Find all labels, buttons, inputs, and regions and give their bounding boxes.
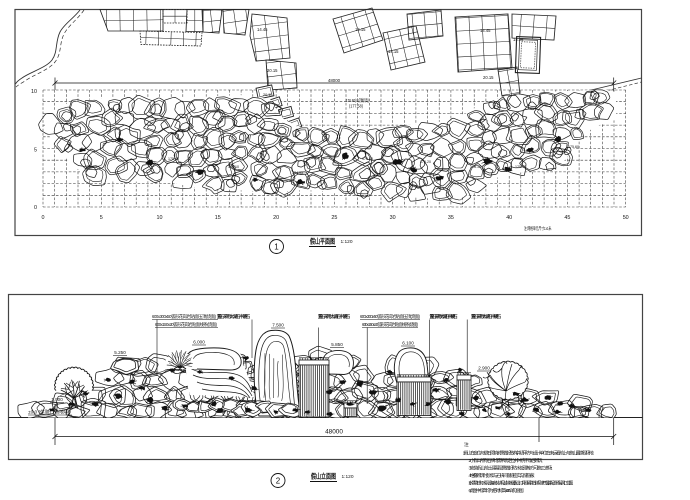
svg-text:20.15: 20.15 bbox=[267, 68, 278, 73]
svg-text:20.15: 20.15 bbox=[263, 93, 273, 97]
svg-text:175.10: 175.10 bbox=[470, 165, 481, 169]
svg-text:6.100: 6.100 bbox=[402, 341, 414, 346]
svg-text:假山立面图: 假山立面图 bbox=[311, 472, 336, 481]
svg-text:置石采用太湖石中硬石: 置石采用太湖石中硬石 bbox=[471, 313, 502, 320]
svg-text:48000: 48000 bbox=[325, 429, 343, 436]
svg-text:10: 10 bbox=[31, 89, 37, 95]
svg-text:48000: 48000 bbox=[328, 78, 341, 83]
svg-text:175.45: 175.45 bbox=[168, 157, 179, 161]
svg-text:0: 0 bbox=[42, 215, 45, 221]
svg-text:±0.0 (休憩广场地坪): ±0.0 (休憩广场地坪) bbox=[28, 409, 71, 416]
svg-text:4.堆叠砌筑时,砂浆与石块间嵌缝密实,勾缝隐蔽.: 4.堆叠砌筑时,砂浆与石块间嵌缝密实,勾缝隐蔽. bbox=[469, 472, 535, 479]
svg-text:(177.58): (177.58) bbox=[349, 104, 363, 109]
svg-text:35: 35 bbox=[448, 215, 454, 221]
svg-text:2.900: 2.900 bbox=[478, 366, 490, 371]
svg-text:1.假山在定位与塑石砌筑前需做好放样,并请甲方与设计单位 在: 1.假山在定位与塑石砌筑前需做好放样,并请甲方与设计单位 在未运看前上与施山置换… bbox=[463, 450, 594, 457]
svg-text:175.60: 175.60 bbox=[568, 145, 579, 149]
svg-text:14.15: 14.15 bbox=[355, 27, 366, 32]
svg-text:2: 2 bbox=[276, 477, 281, 486]
svg-text:6.000: 6.000 bbox=[193, 340, 205, 345]
svg-text:14.45: 14.45 bbox=[480, 28, 491, 33]
svg-text:置石采用太湖石中硬石: 置石采用太湖石中硬石 bbox=[318, 313, 351, 320]
svg-text:14.15: 14.15 bbox=[388, 49, 399, 54]
svg-text:7.500: 7.500 bbox=[272, 323, 284, 328]
svg-text:5: 5 bbox=[34, 148, 37, 154]
svg-text:1:120: 1:120 bbox=[342, 474, 354, 480]
svg-text:20: 20 bbox=[273, 215, 279, 221]
svg-text:600x150x20弧形花岗岩贴面线条(烧面): 600x150x20弧形花岗岩贴面线条(烧面) bbox=[362, 321, 419, 328]
svg-text:25: 25 bbox=[331, 215, 337, 221]
svg-text:600x300x50弧形花岗岩贴面压顶(烧面): 600x300x50弧形花岗岩贴面压顶(烧面) bbox=[360, 313, 421, 320]
svg-text:50: 50 bbox=[623, 215, 629, 221]
svg-text:600x150x20弧形花岗岩贴面线条(烧面): 600x150x20弧形花岗岩贴面线条(烧面) bbox=[155, 321, 218, 328]
svg-text:20.15: 20.15 bbox=[483, 75, 494, 80]
svg-text:15: 15 bbox=[215, 215, 221, 221]
svg-text:5.850: 5.850 bbox=[331, 342, 343, 347]
svg-text:14.45: 14.45 bbox=[257, 27, 268, 32]
svg-text:30: 30 bbox=[390, 215, 396, 221]
svg-text:5.水景管线与水泵设备安装详见给排水图,假山灯具预留管线详见: 5.水景管线与水泵设备安装详见给排水图,假山灯具预留管线详见电气图,并配合预留洞… bbox=[469, 480, 574, 487]
svg-text:3.安装假山前土建基层需做好防水处理等方可施工进场.: 3.安装假山前土建基层需做好防水处理等方可施工进场. bbox=[469, 465, 553, 472]
svg-text:175.10: 175.10 bbox=[228, 165, 239, 169]
svg-text:175.40: 175.40 bbox=[515, 165, 526, 169]
svg-text:1:120: 1:120 bbox=[341, 239, 353, 245]
svg-text:2.小假山所有石块均需吊装定位并冲洗干净后砌筑.: 2.小假山所有石块均需吊装定位并冲洗干净后砌筑. bbox=[469, 457, 543, 464]
svg-text:假山平面图: 假山平面图 bbox=[310, 237, 335, 246]
svg-text:175.45: 175.45 bbox=[362, 157, 373, 161]
svg-text:置石采用太湖石中硬石: 置石采用太湖石中硬石 bbox=[430, 313, 459, 320]
svg-text:600x300x50弧形花岗岩贴面压顶(烧面): 600x300x50弧形花岗岩贴面压顶(烧面) bbox=[152, 313, 217, 320]
svg-text:5.250: 5.250 bbox=[114, 350, 126, 355]
svg-text:10: 10 bbox=[157, 215, 163, 221]
svg-text:0: 0 bbox=[34, 205, 37, 211]
svg-text:置石采用太湖石中硬石: 置石采用太湖石中硬石 bbox=[217, 313, 251, 320]
svg-text:1.900: 1.900 bbox=[51, 397, 63, 402]
svg-text:45: 45 bbox=[564, 215, 570, 221]
svg-text:注:网格单元尺寸1x1米.: 注:网格单元尺寸1x1米. bbox=[524, 225, 552, 232]
svg-text:14.05: 14.05 bbox=[513, 37, 524, 42]
svg-text:5: 5 bbox=[100, 215, 103, 221]
svg-text:注: 注 bbox=[464, 441, 469, 448]
svg-text:1: 1 bbox=[274, 243, 279, 252]
svg-text:175.20: 175.20 bbox=[420, 160, 431, 164]
svg-text:40: 40 bbox=[506, 215, 512, 221]
svg-text:174.95: 174.95 bbox=[292, 171, 303, 175]
svg-text:6.此图中标高均为相对标高±0.00详见总图.: 6.此图中标高均为相对标高±0.00详见总图. bbox=[469, 487, 524, 494]
